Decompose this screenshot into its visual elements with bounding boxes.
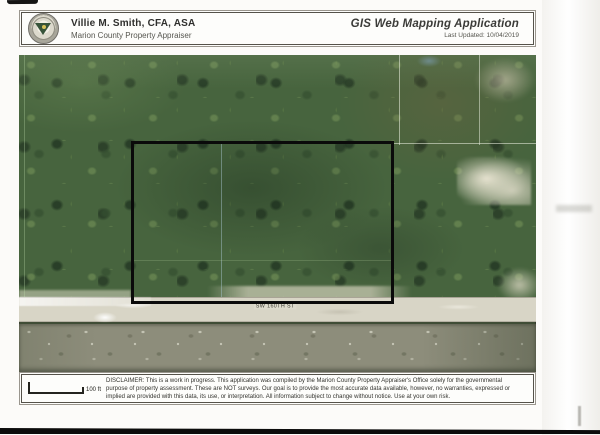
scanned-page: Villie M. Smith, CFA, ASA Marion County … [0, 0, 600, 435]
scan-bleedthrough-artifact [556, 205, 592, 212]
scale-label: 100 ft [86, 387, 101, 393]
road-name-label: SW 160TH ST [254, 304, 296, 309]
application-identity: GIS Web Mapping Application Last Updated… [351, 18, 527, 39]
header-bar: Villie M. Smith, CFA, ASA Marion County … [19, 10, 536, 47]
scale-bar: 100 ft [20, 373, 106, 404]
scale-bar-right-tick [82, 387, 84, 394]
selected-parcel-outline [131, 141, 394, 304]
sand-clearing-patch [474, 57, 536, 103]
scan-bottom-edge-artifact [0, 428, 600, 434]
county-seal-logo [28, 13, 59, 44]
aerial-map-view: SW 160TH ST [19, 55, 536, 372]
appraiser-identity: Villie M. Smith, CFA, ASA Marion County … [71, 18, 195, 40]
scrub-shading [19, 324, 536, 372]
scan-smudge-artifact [7, 0, 38, 4]
scan-corner-artifact [578, 406, 581, 426]
seal-emblem-dot-icon [42, 25, 46, 29]
page-right-margin [542, 0, 600, 435]
appraiser-title: Marion County Property Appraiser [71, 31, 195, 40]
application-title: GIS Web Mapping Application [351, 18, 519, 30]
footer-bar: 100 ft DISCLAIMER: This is a work in pro… [19, 372, 536, 405]
last-updated-text: Last Updated: 10/04/2019 [351, 32, 519, 39]
scale-bar-line [28, 392, 83, 394]
sand-clearing-patch [457, 157, 531, 205]
appraiser-name: Villie M. Smith, CFA, ASA [71, 18, 195, 29]
pond-patch [417, 55, 441, 67]
disclaimer-text: DISCLAIMER: This is a work in progress. … [106, 373, 535, 404]
